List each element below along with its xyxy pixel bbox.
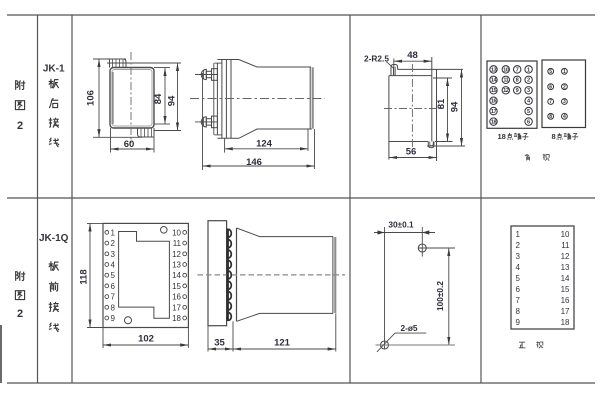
svg-text:13: 13 — [491, 67, 497, 73]
svg-text:12: 12 — [561, 252, 570, 261]
svg-text:4: 4 — [516, 263, 521, 272]
svg-text:18: 18 — [498, 132, 506, 141]
svg-text:10: 10 — [561, 230, 570, 239]
svg-text:5: 5 — [527, 109, 530, 115]
svg-text:106: 106 — [86, 90, 97, 106]
svg-text:35: 35 — [214, 338, 225, 349]
svg-text:14: 14 — [172, 271, 181, 280]
svg-text:10: 10 — [503, 67, 509, 73]
svg-text:11: 11 — [173, 239, 182, 248]
svg-text:1: 1 — [527, 67, 530, 73]
svg-text:5: 5 — [516, 274, 521, 283]
svg-text:2-R2.5: 2-R2.5 — [364, 53, 389, 63]
svg-text:15: 15 — [172, 282, 181, 291]
svg-text:16: 16 — [561, 296, 570, 305]
svg-text:2: 2 — [111, 239, 116, 248]
svg-text:118: 118 — [78, 269, 89, 284]
svg-text:2-ø5: 2-ø5 — [400, 323, 417, 333]
svg-text:JK-1: JK-1 — [43, 64, 65, 75]
svg-text:3: 3 — [527, 88, 530, 94]
svg-text:3: 3 — [111, 250, 116, 259]
svg-text:18: 18 — [491, 120, 497, 126]
svg-text:124: 124 — [256, 139, 273, 150]
svg-text:11: 11 — [561, 241, 570, 250]
svg-text:5: 5 — [549, 69, 552, 75]
svg-text:12: 12 — [172, 250, 181, 259]
svg-text:60: 60 — [124, 139, 135, 150]
svg-text:56: 56 — [406, 147, 417, 158]
svg-text:17: 17 — [172, 303, 181, 312]
svg-text:13: 13 — [172, 261, 181, 270]
svg-text:14: 14 — [561, 274, 570, 283]
svg-text:7: 7 — [516, 67, 519, 73]
svg-text:4: 4 — [563, 114, 566, 120]
svg-text:2: 2 — [563, 84, 566, 90]
svg-text:9: 9 — [516, 318, 521, 327]
svg-text:8: 8 — [552, 132, 556, 141]
svg-text:1: 1 — [516, 230, 521, 239]
svg-text:8: 8 — [516, 78, 519, 84]
svg-text:9: 9 — [516, 88, 519, 94]
svg-text:11: 11 — [503, 78, 508, 84]
svg-text:7: 7 — [549, 99, 552, 105]
svg-text:17: 17 — [561, 307, 570, 316]
svg-text:5: 5 — [111, 271, 116, 280]
svg-text:48: 48 — [407, 50, 418, 61]
svg-text:JK-1Q: JK-1Q — [39, 233, 69, 244]
svg-text:16: 16 — [172, 293, 181, 302]
svg-text:6: 6 — [516, 285, 521, 294]
svg-text:13: 13 — [561, 263, 570, 272]
svg-text:102: 102 — [138, 333, 154, 344]
svg-text:6: 6 — [111, 282, 116, 291]
svg-text:2: 2 — [527, 78, 530, 84]
svg-text:1: 1 — [111, 228, 116, 237]
svg-text:17: 17 — [491, 109, 497, 115]
svg-text:8: 8 — [111, 303, 116, 312]
svg-text:6: 6 — [549, 84, 552, 90]
svg-text:81: 81 — [436, 98, 447, 109]
svg-text:94: 94 — [450, 101, 461, 112]
svg-text:7: 7 — [111, 293, 116, 302]
svg-text:15: 15 — [561, 285, 570, 294]
svg-text:121: 121 — [274, 338, 291, 349]
svg-text:100±0.2: 100±0.2 — [435, 281, 445, 311]
svg-text:6: 6 — [527, 120, 530, 126]
svg-text:18: 18 — [172, 314, 181, 323]
svg-text:15: 15 — [491, 88, 497, 94]
svg-text:8: 8 — [549, 114, 552, 120]
svg-text:18: 18 — [561, 318, 570, 327]
svg-text:12: 12 — [503, 88, 509, 94]
svg-text:3: 3 — [516, 252, 521, 261]
svg-text:7: 7 — [516, 296, 521, 305]
svg-text:146: 146 — [246, 157, 262, 168]
svg-text:9: 9 — [111, 314, 116, 323]
svg-text:94: 94 — [167, 95, 178, 106]
svg-text:2: 2 — [17, 120, 23, 132]
svg-text:84: 84 — [153, 93, 164, 104]
svg-text:8: 8 — [516, 307, 521, 316]
svg-text:1: 1 — [563, 69, 566, 75]
svg-text:3: 3 — [563, 99, 566, 105]
svg-text:16: 16 — [491, 99, 497, 105]
svg-text:10: 10 — [172, 228, 181, 237]
svg-text:2: 2 — [516, 241, 521, 250]
svg-text:2: 2 — [17, 308, 23, 320]
svg-text:4: 4 — [111, 261, 116, 270]
svg-text:30±0.1: 30±0.1 — [388, 220, 414, 230]
